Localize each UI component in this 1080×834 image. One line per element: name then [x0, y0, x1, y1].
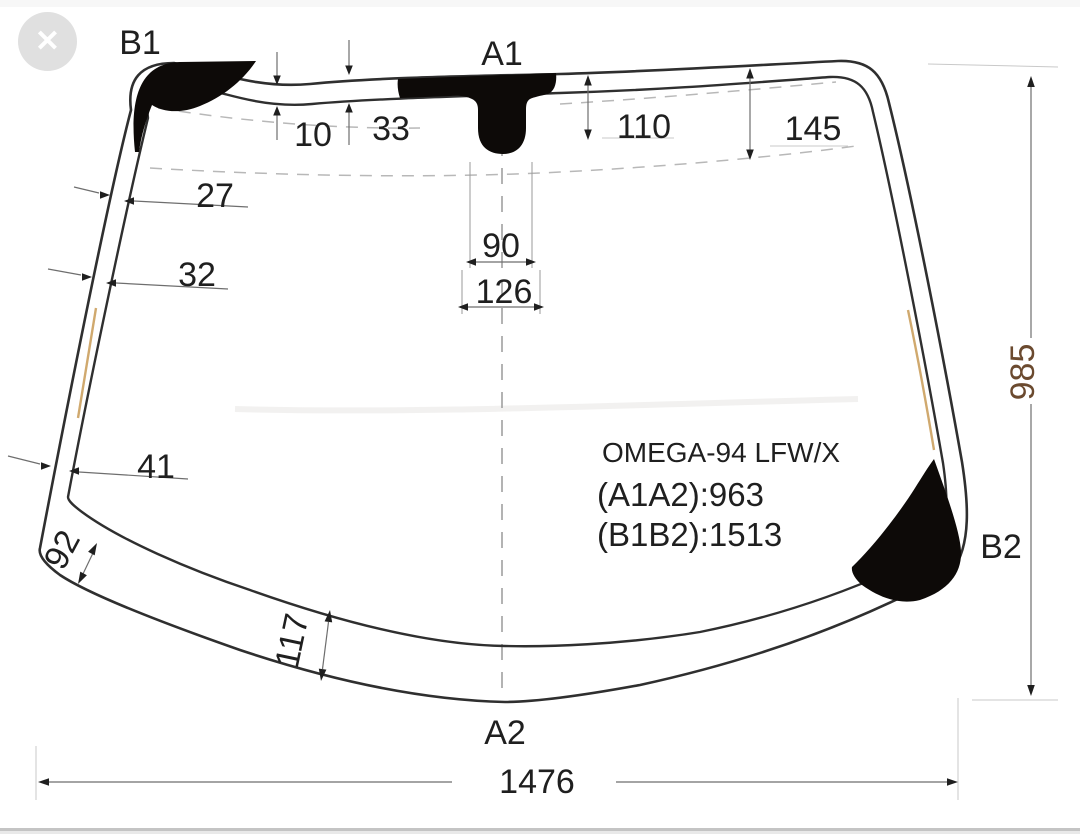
dim-33-value: 33 [372, 110, 410, 148]
part-name: OMEGA-94 LFW/X [602, 437, 840, 468]
dim-110: 110 [584, 75, 674, 146]
label-a2: A2 [484, 714, 526, 752]
dim-27-value: 27 [196, 177, 234, 215]
glass-outer-outline [40, 61, 967, 702]
ceramic-band-sensor [398, 73, 557, 154]
close-button[interactable]: ✕ [18, 12, 77, 71]
glass-inner-outline [68, 77, 946, 646]
windshield-dimension-diagram: 10 33 110 145 [0, 0, 1080, 834]
label-b2: B2 [980, 528, 1022, 566]
label-b1: B1 [119, 24, 161, 62]
artifact-smudge [235, 399, 858, 410]
label-a1: A1 [481, 35, 523, 73]
dim-90-value: 90 [482, 227, 520, 265]
dim-10-value: 10 [294, 116, 332, 154]
dim-90: 90 [466, 162, 536, 268]
dim-92: 92 [37, 524, 97, 584]
spec-a1a2: (A1A2):963 [597, 476, 764, 513]
dim-27: 27 [74, 177, 248, 215]
dim-41: 41 [8, 448, 188, 486]
spec-b1b2: (B1B2):1513 [597, 516, 782, 553]
dim-126: 126 [458, 270, 544, 314]
dim-32-value: 32 [178, 256, 216, 294]
right-edge-tint [908, 310, 934, 450]
ceramic-band-top-left [134, 61, 256, 152]
dim-117-value: 117 [268, 610, 316, 671]
dim-985-value: 985 [1004, 344, 1042, 401]
diagram-canvas: 10 33 110 145 [0, 0, 1080, 834]
close-icon: ✕ [35, 27, 60, 57]
dim-32: 32 [48, 256, 228, 294]
dim-117: 117 [268, 610, 332, 681]
dim-126-value: 126 [476, 273, 533, 311]
dim-145-value: 145 [785, 110, 842, 148]
dim-110-value: 110 [617, 108, 671, 146]
dim-1476-value: 1476 [499, 763, 575, 801]
dim-41-value: 41 [137, 448, 175, 486]
